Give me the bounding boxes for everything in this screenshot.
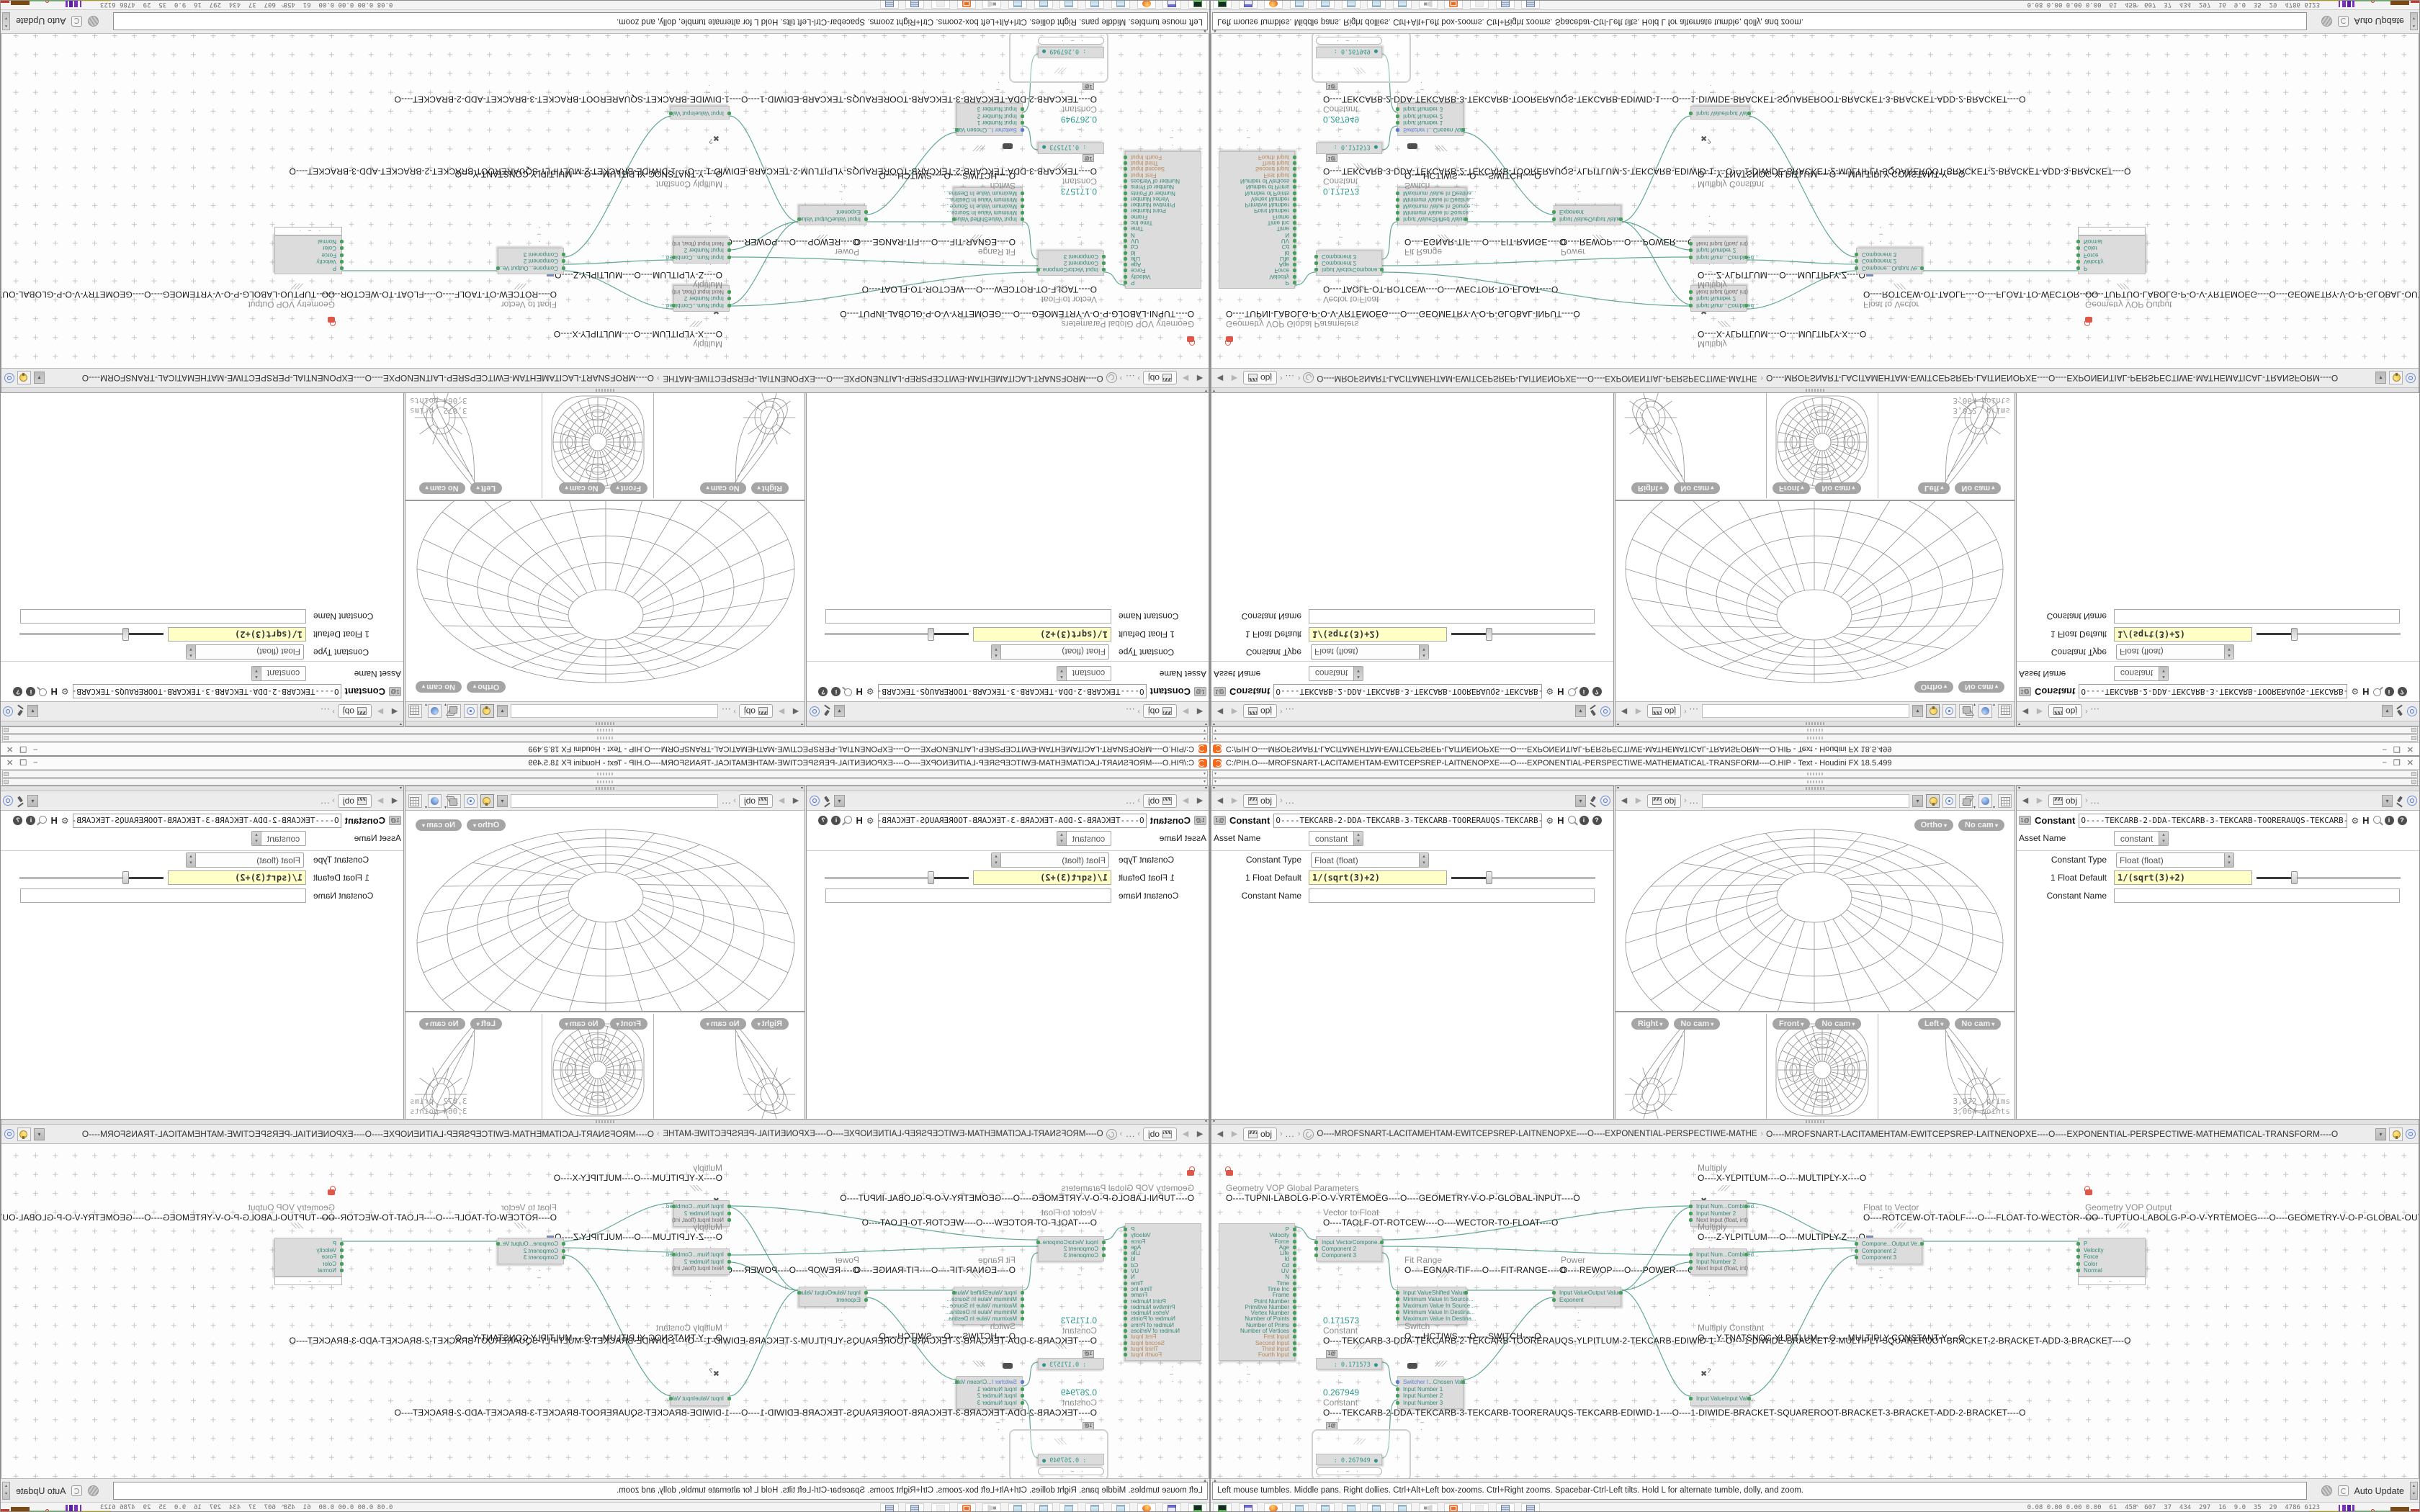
taskbar-icon-ghost[interactable] bbox=[1470, 0, 1489, 9]
path-ellipsis[interactable]: ... bbox=[320, 796, 329, 806]
viewport-front-view[interactable]: Front No cam bbox=[1767, 392, 1878, 498]
taskbar-icon-notepad[interactable] bbox=[1367, 0, 1386, 9]
node-name-field[interactable]: O----TEKCARB-2-DDA-TEKCARB-3-TEKCARB-TOO… bbox=[878, 685, 1147, 699]
output-port-dot[interactable] bbox=[1124, 179, 1127, 183]
input-port-dot[interactable] bbox=[727, 256, 731, 259]
float-default-slider[interactable] bbox=[2257, 870, 2401, 885]
splitter-handle[interactable] bbox=[596, 389, 614, 392]
dropdown-button[interactable]: ▾ bbox=[2382, 795, 2393, 807]
output-port-dot[interactable] bbox=[1619, 217, 1623, 221]
taskbar-icon-ghost[interactable] bbox=[1470, 1503, 1489, 1512]
help-icon[interactable]: ? bbox=[819, 687, 828, 696]
output-port-dot[interactable] bbox=[1124, 185, 1127, 189]
help-icon[interactable]: ? bbox=[1592, 687, 1602, 696]
path-ellipsis[interactable]: ... bbox=[2091, 796, 2100, 806]
output-port-dot[interactable] bbox=[1293, 251, 1296, 255]
node-box[interactable]: Input ValueOutput ValueExponent bbox=[1554, 205, 1621, 225]
constant-name-field[interactable] bbox=[2114, 888, 2400, 903]
output-port-dot[interactable] bbox=[1293, 185, 1296, 189]
viewport-big-view[interactable]: Ortho No cam bbox=[405, 500, 805, 701]
output-port-dot[interactable] bbox=[1124, 1282, 1127, 1285]
taskbar-icon-speaker[interactable] bbox=[982, 1503, 1001, 1512]
pane-top-strip[interactable]: ▾ bbox=[1615, 721, 2015, 726]
pane-top-strip[interactable]: ▾ bbox=[807, 721, 1209, 726]
node-box[interactable]: PVelocityForceColorNormal bbox=[2078, 235, 2146, 274]
output-port-dot[interactable] bbox=[1124, 1329, 1127, 1333]
output-port-dot[interactable] bbox=[1293, 239, 1296, 243]
slider-knob[interactable] bbox=[2291, 628, 2298, 641]
float-default-expression-field[interactable]: 1/(sqrt(3)+2) bbox=[2114, 870, 2252, 885]
camera-menu-pill[interactable]: No cam bbox=[419, 482, 465, 494]
houdini-engine-icon[interactable]: H bbox=[51, 686, 58, 697]
taskbar-icon-notepad[interactable] bbox=[1316, 0, 1335, 9]
camera-menu-pill[interactable]: No cam bbox=[1815, 482, 1861, 494]
lamp-icon[interactable] bbox=[17, 1128, 31, 1141]
houdini-engine-icon[interactable]: H bbox=[2362, 686, 2369, 697]
path-ellipsis[interactable]: ... bbox=[721, 796, 730, 806]
restore-button[interactable]: ❐ bbox=[19, 758, 27, 768]
node-footer-capsule[interactable]: · – · bbox=[1038, 37, 1104, 45]
back-arrow-icon[interactable]: ◀ bbox=[1194, 705, 1206, 718]
input-port-dot[interactable] bbox=[727, 304, 731, 307]
network-canvas[interactable]: Geometry VOP Global ParametersO----TUPNI… bbox=[1211, 1144, 2419, 1478]
collapsed-menu-strip[interactable]: ▾ bbox=[1212, 770, 2418, 778]
search-icon[interactable] bbox=[845, 816, 853, 824]
spinner-icon[interactable]: ▴▾ bbox=[1353, 832, 1363, 845]
spinner-icon[interactable]: ▴▾ bbox=[2224, 645, 2233, 659]
input-port-dot[interactable] bbox=[1021, 217, 1024, 221]
output-port-dot[interactable] bbox=[1036, 268, 1040, 271]
input-port-dot[interactable] bbox=[1102, 1247, 1106, 1251]
help-icon[interactable]: ? bbox=[819, 816, 828, 825]
input-port-dot[interactable] bbox=[340, 1269, 344, 1272]
network-breadcrumb-name[interactable]: O----MROFSNART-LACITAMEHTAM-EWITCEPSREP-… bbox=[1317, 374, 1757, 382]
spinner-icon[interactable]: ▴▾ bbox=[187, 645, 196, 659]
taskbar-icon-notepad[interactable] bbox=[1060, 1503, 1079, 1512]
pin-icon[interactable] bbox=[16, 796, 24, 806]
taskbar-icon-notepad[interactable] bbox=[1034, 0, 1053, 9]
output-port-dot[interactable] bbox=[1293, 281, 1296, 284]
dropdown-button[interactable]: ▾ bbox=[27, 795, 38, 807]
taskbar-icon-ghost[interactable] bbox=[931, 0, 950, 9]
pin-icon[interactable] bbox=[823, 706, 831, 716]
input-port-dot[interactable] bbox=[864, 210, 868, 214]
camera-menu-pill[interactable]: No cam bbox=[416, 819, 462, 831]
pin-icon[interactable] bbox=[2396, 796, 2404, 806]
path-ellipsis[interactable]: ... bbox=[721, 706, 730, 716]
input-port-dot[interactable] bbox=[1855, 260, 1858, 264]
output-port-dot[interactable] bbox=[955, 128, 959, 132]
spinner-icon[interactable]: ▴▾ bbox=[1353, 667, 1363, 680]
input-port-dot[interactable] bbox=[1689, 297, 1693, 301]
taskbar-icon-firefox[interactable] bbox=[1137, 1503, 1156, 1512]
asset-name-combo[interactable]: constant ▴▾ bbox=[1309, 831, 1363, 846]
output-port-dot[interactable] bbox=[496, 1242, 500, 1246]
back-arrow-icon[interactable]: ◀ bbox=[1214, 705, 1226, 718]
splitter-handle[interactable] bbox=[596, 787, 614, 790]
taskbar-icon-scroll[interactable] bbox=[1496, 1503, 1515, 1512]
dropdown-button[interactable]: ▾ bbox=[1912, 706, 1923, 718]
node-footer-dots[interactable]: · – · bbox=[1168, 127, 1173, 149]
output-port-dot[interactable] bbox=[1124, 1246, 1127, 1249]
context-chip[interactable]: obj bbox=[1143, 1128, 1177, 1141]
node-footer-dots[interactable]: · – · bbox=[535, 225, 541, 246]
input-port-dot[interactable] bbox=[1552, 1291, 1556, 1295]
output-port-dot[interactable] bbox=[1619, 1291, 1623, 1295]
constant-name-field[interactable] bbox=[1309, 888, 1595, 903]
node-box[interactable]: : 0.267949 ● bbox=[1316, 47, 1382, 58]
asset-name-combo[interactable]: constant ▴▾ bbox=[2114, 666, 2169, 681]
node-footer-dots[interactable]: · – · bbox=[1339, 227, 1345, 248]
input-port-dot[interactable] bbox=[1689, 1253, 1693, 1256]
output-port-dot[interactable] bbox=[1124, 1300, 1127, 1303]
dropdown-button[interactable]: ▾ bbox=[2382, 706, 2393, 718]
input-port-dot[interactable] bbox=[2076, 266, 2080, 270]
input-port-dot[interactable] bbox=[2076, 1262, 2080, 1266]
search-icon[interactable] bbox=[40, 816, 48, 824]
back-arrow-icon[interactable]: ◀ bbox=[1618, 705, 1630, 718]
memory-ball-icon[interactable] bbox=[89, 1485, 99, 1496]
context-chip[interactable]: obj bbox=[1243, 372, 1277, 385]
camera-path-field[interactable] bbox=[1702, 794, 1909, 808]
network-canvas[interactable]: Geometry VOP Global ParametersO----TUPNI… bbox=[1, 1144, 1209, 1478]
view-menu-pill[interactable]: Left bbox=[1918, 1018, 1950, 1030]
node-footer-dots[interactable]: · – · bbox=[1708, 214, 1714, 235]
constant-name-field[interactable] bbox=[20, 609, 306, 624]
float-default-slider[interactable] bbox=[1451, 627, 1595, 642]
node-name-field[interactable]: O----TEKCARB-2-DDA-TEKCARB-3-TEKCARB-TOO… bbox=[73, 814, 341, 828]
pin-icon[interactable] bbox=[1589, 706, 1597, 716]
node-box[interactable]: : 0.171573 ● bbox=[1038, 143, 1104, 154]
network-path-field[interactable]: O----MROFSNART-LACITAMEHTAM-EWITCEPSREP-… bbox=[48, 1129, 654, 1139]
node-box[interactable]: PVelocityForceColorNormal bbox=[274, 235, 342, 274]
radial-menu-icon[interactable] bbox=[4, 1129, 14, 1139]
select-target-icon[interactable] bbox=[1942, 705, 1956, 719]
forward-arrow-icon[interactable]: ▶ bbox=[375, 705, 386, 718]
output-port-dot[interactable] bbox=[1124, 1317, 1127, 1320]
pin-icon[interactable] bbox=[16, 706, 24, 716]
taskbar-icon-scroll[interactable] bbox=[1496, 0, 1515, 9]
constant-name-field[interactable] bbox=[2114, 609, 2400, 624]
geometry-cube-icon[interactable] bbox=[447, 794, 461, 808]
back-arrow-icon[interactable]: ◀ bbox=[389, 705, 400, 718]
asset-name-combo[interactable]: constant ▴▾ bbox=[1057, 831, 1111, 846]
minimize-button[interactable]: – bbox=[33, 744, 37, 754]
pin-icon[interactable] bbox=[1589, 796, 1597, 806]
houdini-engine-icon[interactable]: H bbox=[2362, 815, 2369, 826]
input-port-dot[interactable] bbox=[1021, 1380, 1024, 1384]
spinner-icon[interactable]: ▴▾ bbox=[252, 667, 261, 680]
input-port-dot[interactable] bbox=[1314, 1254, 1318, 1257]
viewport-left-view[interactable]: Left No cam 3,072 prims3,064 points bbox=[1878, 1014, 2015, 1120]
search-icon[interactable] bbox=[845, 688, 853, 696]
input-port-dot[interactable] bbox=[2076, 240, 2080, 243]
info-icon[interactable]: i bbox=[27, 687, 36, 696]
node-name-field[interactable]: O----TEKCARB-2-DDA-TEKCARB-3-TEKCARB-TOO… bbox=[2079, 685, 2347, 699]
taskbar-icon-notepad[interactable] bbox=[1008, 1503, 1027, 1512]
houdini-engine-icon[interactable]: H bbox=[856, 686, 863, 697]
taskbar-icon-save64[interactable] bbox=[1239, 1503, 1258, 1512]
input-port-dot[interactable] bbox=[2076, 253, 2080, 257]
input-port-dot[interactable] bbox=[340, 266, 344, 270]
output-port-dot[interactable] bbox=[1293, 1233, 1296, 1237]
spinner-icon[interactable]: ▴▾ bbox=[2224, 853, 2233, 867]
select-target-icon[interactable] bbox=[464, 794, 478, 808]
input-port-dot[interactable] bbox=[1552, 1298, 1556, 1302]
output-port-dot[interactable] bbox=[1293, 221, 1296, 225]
camera-menu-pill[interactable]: No cam bbox=[559, 1018, 605, 1030]
node-box[interactable]: Input ValueOutput ValueExponent bbox=[799, 1287, 866, 1307]
output-port-dot[interactable] bbox=[1036, 1241, 1040, 1244]
output-port-dot[interactable] bbox=[1920, 266, 1924, 270]
gear-icon[interactable]: ⚙ bbox=[866, 816, 874, 826]
output-port-dot[interactable] bbox=[1464, 217, 1468, 221]
node-footer-capsule[interactable]: · – · bbox=[1316, 1467, 1382, 1475]
gear-icon[interactable]: ⚙ bbox=[866, 687, 874, 697]
output-port-dot[interactable] bbox=[1124, 203, 1127, 207]
output-port-dot[interactable] bbox=[1380, 1241, 1384, 1244]
input-port-dot[interactable] bbox=[1021, 1304, 1024, 1308]
float-default-expression-field[interactable]: 1/(sqrt(3)+2) bbox=[973, 627, 1111, 642]
output-port-dot[interactable] bbox=[1293, 1300, 1296, 1303]
node-footer-dots[interactable]: · – · bbox=[1879, 1266, 1885, 1288]
output-port-dot[interactable] bbox=[1461, 1380, 1465, 1384]
spinner-icon[interactable]: ▴▾ bbox=[2159, 832, 2168, 845]
pane-top-strip[interactable]: ▾ bbox=[0, 786, 403, 791]
input-port-dot[interactable] bbox=[864, 217, 868, 221]
output-port-dot[interactable] bbox=[1124, 1251, 1127, 1255]
refresh-icon[interactable] bbox=[2338, 1485, 2349, 1496]
float-default-slider[interactable] bbox=[19, 627, 163, 642]
context-chip[interactable]: obj bbox=[1143, 372, 1177, 385]
node-box[interactable]: Input VectorCompone...Component 2Compone… bbox=[1316, 1236, 1382, 1261]
node-footer-dots[interactable]: · – · bbox=[1168, 1363, 1173, 1385]
node-box[interactable]: Input Num...Combined...Input Number 2Nex… bbox=[1690, 238, 1747, 264]
input-port-dot[interactable] bbox=[1314, 261, 1318, 265]
float-default-slider[interactable] bbox=[19, 870, 163, 885]
constant-type-combo[interactable]: Float (float) ▴▾ bbox=[1311, 644, 1429, 660]
grid-display-icon[interactable] bbox=[408, 705, 422, 719]
taskbar-icon-ghost[interactable] bbox=[931, 1503, 950, 1512]
help-icon[interactable]: ? bbox=[2398, 816, 2407, 825]
input-port-dot[interactable] bbox=[2076, 260, 2080, 264]
output-port-dot[interactable] bbox=[1293, 233, 1296, 237]
output-port-dot[interactable] bbox=[1124, 227, 1127, 230]
dropdown-button[interactable]: ▾ bbox=[2375, 372, 2386, 384]
slider-knob[interactable] bbox=[1486, 871, 1492, 884]
collapsed-shelf-strip[interactable]: ▾ bbox=[2, 726, 1208, 734]
viewport-right-view[interactable]: Right No cam bbox=[653, 392, 805, 498]
auto-update-spinner[interactable]: ▴▾ bbox=[2410, 12, 2418, 30]
grid-display-icon[interactable] bbox=[1998, 705, 2012, 719]
output-port-dot[interactable] bbox=[1293, 197, 1296, 201]
title-bar[interactable]: C:/PIH.O----MROFSNART-LACITAMEHTAM-EWITC… bbox=[1, 742, 1209, 755]
path-ellipsis[interactable]: ... bbox=[1690, 706, 1699, 716]
asset-name-combo[interactable]: constant ▴▾ bbox=[2114, 831, 2169, 846]
input-port-dot[interactable] bbox=[2076, 1242, 2080, 1246]
minimize-button[interactable]: – bbox=[2383, 758, 2387, 768]
slider-knob[interactable] bbox=[2291, 871, 2298, 884]
output-port-dot[interactable] bbox=[672, 1253, 676, 1256]
input-port-dot[interactable] bbox=[1102, 261, 1106, 265]
help-icon[interactable]: ? bbox=[14, 816, 23, 825]
node-box[interactable]: PVelocityForceAgeLifeIdCdUVNTimeTime Inc… bbox=[1125, 1223, 1201, 1361]
constant-type-combo[interactable]: Float (float) ▴▾ bbox=[1311, 852, 1429, 868]
highlight-lamp-icon[interactable] bbox=[1926, 705, 1940, 719]
node-box[interactable]: Input VectorCompone...Component 2Compone… bbox=[1316, 251, 1382, 276]
output-port-dot[interactable] bbox=[952, 217, 956, 221]
output-port-dot[interactable] bbox=[672, 256, 676, 259]
shading-sphere-icon[interactable] bbox=[428, 705, 442, 719]
output-port-dot[interactable] bbox=[1124, 1257, 1127, 1261]
radial-menu-icon[interactable] bbox=[2406, 1129, 2416, 1139]
forward-arrow-icon[interactable]: ▶ bbox=[776, 794, 787, 807]
output-port-dot[interactable] bbox=[1124, 1341, 1127, 1345]
taskbar-icon-scroll[interactable] bbox=[1521, 0, 1540, 9]
asset-name-combo[interactable]: constant ▴▾ bbox=[1309, 666, 1363, 681]
network-breadcrumb-name[interactable]: O----MROFSNART-LACITAMEHTAM-EWITCEPSREP-… bbox=[663, 374, 1103, 382]
dropdown-button[interactable]: ▾ bbox=[834, 795, 845, 807]
context-chip[interactable]: obj bbox=[1647, 794, 1681, 808]
context-chip[interactable]: obj bbox=[1143, 705, 1177, 719]
output-port-dot[interactable] bbox=[1124, 233, 1127, 237]
view-menu-pill[interactable]: Left bbox=[470, 1018, 502, 1030]
auto-update-spinner[interactable]: ▴▾ bbox=[2410, 1482, 2418, 1500]
slider-knob[interactable] bbox=[928, 871, 934, 884]
view-menu-pill[interactable]: Ortho bbox=[467, 819, 506, 831]
pane-top-strip[interactable]: ▾ bbox=[405, 721, 805, 726]
viewport-big-view[interactable]: Ortho No cam bbox=[1615, 500, 2015, 701]
constant-name-field[interactable] bbox=[825, 609, 1111, 624]
node-box[interactable]: : 0.171573 ● bbox=[1316, 143, 1382, 154]
input-port-dot[interactable] bbox=[1102, 255, 1106, 258]
collapsed-shelf-strip[interactable]: ▾ bbox=[2, 778, 1208, 786]
input-port-dot[interactable] bbox=[1314, 1247, 1318, 1251]
input-port-dot[interactable] bbox=[1102, 268, 1106, 271]
viewport-front-view[interactable]: Front No cam bbox=[1767, 1014, 1878, 1120]
view-menu-pill[interactable]: Ortho bbox=[1914, 681, 1953, 693]
collapsed-menu-strip[interactable]: ▾ bbox=[1212, 734, 2418, 742]
taskbar-icon-notepad[interactable] bbox=[1085, 0, 1104, 9]
node-footer-dots[interactable]: · – · bbox=[1247, 1363, 1252, 1385]
constant-type-combo[interactable]: Float (float) ▴▾ bbox=[186, 852, 304, 868]
gear-icon[interactable]: ⚙ bbox=[61, 687, 69, 697]
title-bar[interactable]: C:/PIH.O----MROFSNART-LACITAMEHTAM-EWITC… bbox=[1211, 742, 2419, 755]
auto-update-label[interactable]: Auto Update bbox=[2354, 1486, 2405, 1496]
network-breadcrumb-name[interactable]: O----MROFSNART-LACITAMEHTAM-EWITCEPSREP-… bbox=[663, 1130, 1103, 1138]
output-port-dot[interactable] bbox=[1293, 1282, 1296, 1285]
back-arrow-icon[interactable]: ◀ bbox=[389, 794, 400, 807]
output-port-dot[interactable] bbox=[1920, 1242, 1924, 1246]
spinner-icon[interactable]: ▴▾ bbox=[992, 853, 1001, 867]
output-port-dot[interactable] bbox=[1124, 156, 1127, 159]
dropdown-button[interactable]: ▾ bbox=[34, 1128, 45, 1140]
output-port-dot[interactable] bbox=[1293, 1347, 1296, 1351]
grid-display-icon[interactable] bbox=[1998, 794, 2012, 808]
viewport-right-view[interactable]: Right No cam bbox=[1615, 392, 1767, 498]
input-port-dot[interactable] bbox=[1689, 256, 1693, 259]
input-port-dot[interactable] bbox=[1396, 204, 1399, 208]
node-box[interactable]: : 0.267949 ● bbox=[1316, 1454, 1382, 1465]
constant-type-combo[interactable]: Float (float) ▴▾ bbox=[991, 644, 1109, 660]
path-ellipsis[interactable]: ... bbox=[1125, 1129, 1134, 1139]
output-port-dot[interactable] bbox=[1124, 281, 1127, 284]
memory-ball-icon[interactable] bbox=[2321, 16, 2332, 27]
auto-update-spinner[interactable]: ▴▾ bbox=[2, 12, 10, 30]
float-default-expression-field[interactable]: 1/(sqrt(3)+2) bbox=[973, 870, 1111, 885]
output-port-dot[interactable] bbox=[1293, 1228, 1296, 1231]
output-port-dot[interactable] bbox=[1744, 1253, 1748, 1256]
splitter-handle[interactable] bbox=[1806, 389, 1824, 392]
output-port-dot[interactable] bbox=[1293, 192, 1296, 195]
forward-arrow-icon[interactable]: ▶ bbox=[1633, 794, 1644, 807]
back-arrow-icon[interactable]: ◀ bbox=[2020, 794, 2031, 807]
slider-knob[interactable] bbox=[928, 628, 934, 641]
houdini-engine-icon[interactable]: H bbox=[856, 815, 863, 826]
back-arrow-icon[interactable]: ◀ bbox=[790, 794, 802, 807]
spinner-icon[interactable]: ▴▾ bbox=[252, 832, 261, 845]
input-port-dot[interactable] bbox=[340, 240, 344, 243]
view-menu-pill[interactable]: Ortho bbox=[467, 681, 506, 693]
taskbar-icon-notepad[interactable] bbox=[1290, 1503, 1309, 1512]
collapsed-shelf-strip[interactable]: ▾ bbox=[1212, 778, 2418, 786]
input-port-dot[interactable] bbox=[340, 1248, 344, 1252]
input-port-dot[interactable] bbox=[562, 266, 565, 270]
radial-menu-icon[interactable] bbox=[1600, 706, 1610, 716]
highlight-lamp-icon[interactable] bbox=[480, 794, 494, 808]
output-port-dot[interactable] bbox=[1293, 215, 1296, 219]
radial-menu-icon[interactable] bbox=[810, 796, 820, 806]
input-port-dot[interactable] bbox=[727, 1260, 731, 1264]
node-box[interactable]: : 0.171573 ● bbox=[1038, 1358, 1104, 1369]
float-default-expression-field[interactable]: 1/(sqrt(3)+2) bbox=[168, 627, 306, 642]
minimize-button[interactable]: – bbox=[33, 758, 37, 768]
node-footer-dots[interactable]: · – · bbox=[1879, 225, 1885, 246]
output-port-dot[interactable] bbox=[1124, 197, 1127, 201]
taskbar-icon-notepad[interactable] bbox=[1342, 1503, 1361, 1512]
shading-sphere-icon[interactable] bbox=[1978, 705, 1992, 719]
back-arrow-icon[interactable]: ◀ bbox=[1194, 1128, 1206, 1140]
output-port-dot[interactable] bbox=[1124, 1353, 1127, 1356]
title-bar[interactable]: C:/PIH.O----MROFSNART-LACITAMEHTAM-EWITC… bbox=[1211, 757, 2419, 770]
taskbar-icon-houdini[interactable] bbox=[957, 0, 976, 9]
output-port-dot[interactable] bbox=[1293, 245, 1296, 248]
forward-arrow-icon[interactable]: ▶ bbox=[1633, 705, 1644, 718]
houdini-engine-icon[interactable]: H bbox=[51, 815, 58, 826]
input-port-dot[interactable] bbox=[864, 1298, 868, 1302]
output-port-dot[interactable] bbox=[1124, 269, 1127, 272]
float-default-slider[interactable] bbox=[825, 870, 969, 885]
input-port-dot[interactable] bbox=[1689, 1212, 1693, 1215]
node-box[interactable]: PVelocityForceColorNormal bbox=[2078, 1238, 2146, 1277]
path-ellipsis[interactable]: ... bbox=[1125, 706, 1134, 716]
input-port-dot[interactable] bbox=[1689, 242, 1693, 246]
taskbar-icon-notepad[interactable] bbox=[1085, 1503, 1104, 1512]
viewport-right-view[interactable]: Right No cam bbox=[1615, 1014, 1767, 1120]
node-box[interactable]: Compone...Output Ve...Component 2Compone… bbox=[1856, 248, 1922, 275]
spinner-icon[interactable]: ▴▾ bbox=[187, 853, 196, 867]
network-path-field[interactable]: O----MROFSNART-LACITAMEHTAM-EWITCEPSREP-… bbox=[48, 373, 654, 383]
input-port-dot[interactable] bbox=[727, 1212, 731, 1215]
node-box[interactable]: : 0.267949 ● bbox=[1038, 47, 1104, 58]
viewport-left-view[interactable]: Left No cam 3,072 prims3,064 points bbox=[1878, 392, 2015, 498]
collapsed-menu-strip[interactable]: ▾ bbox=[2, 734, 1208, 742]
output-port-dot[interactable] bbox=[1293, 1264, 1296, 1267]
viewport-front-view[interactable]: Front No cam bbox=[542, 392, 653, 498]
camera-menu-pill[interactable]: No cam bbox=[1674, 1018, 1720, 1030]
node-footer-bar[interactable]: · – · bbox=[2078, 227, 2146, 235]
node-name-field[interactable]: O----TEKCARB-2-DDA-TEKCARB-3-TEKCARB-TOO… bbox=[2079, 814, 2347, 828]
